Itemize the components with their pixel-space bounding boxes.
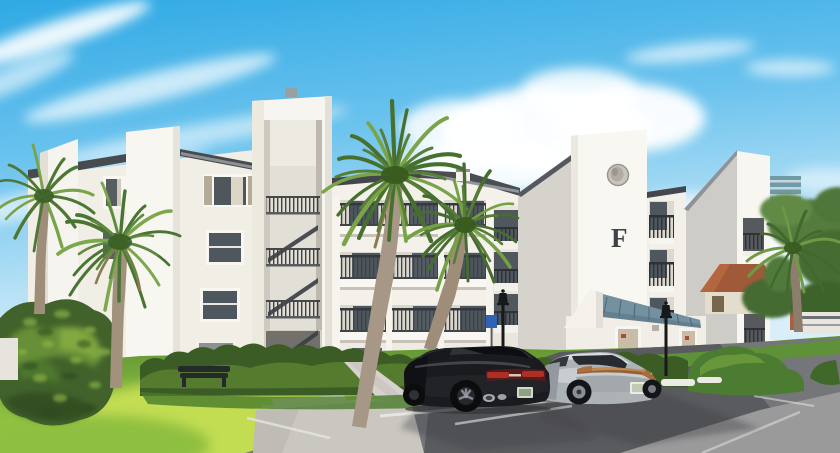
svg-text:F: F — [611, 223, 628, 253]
